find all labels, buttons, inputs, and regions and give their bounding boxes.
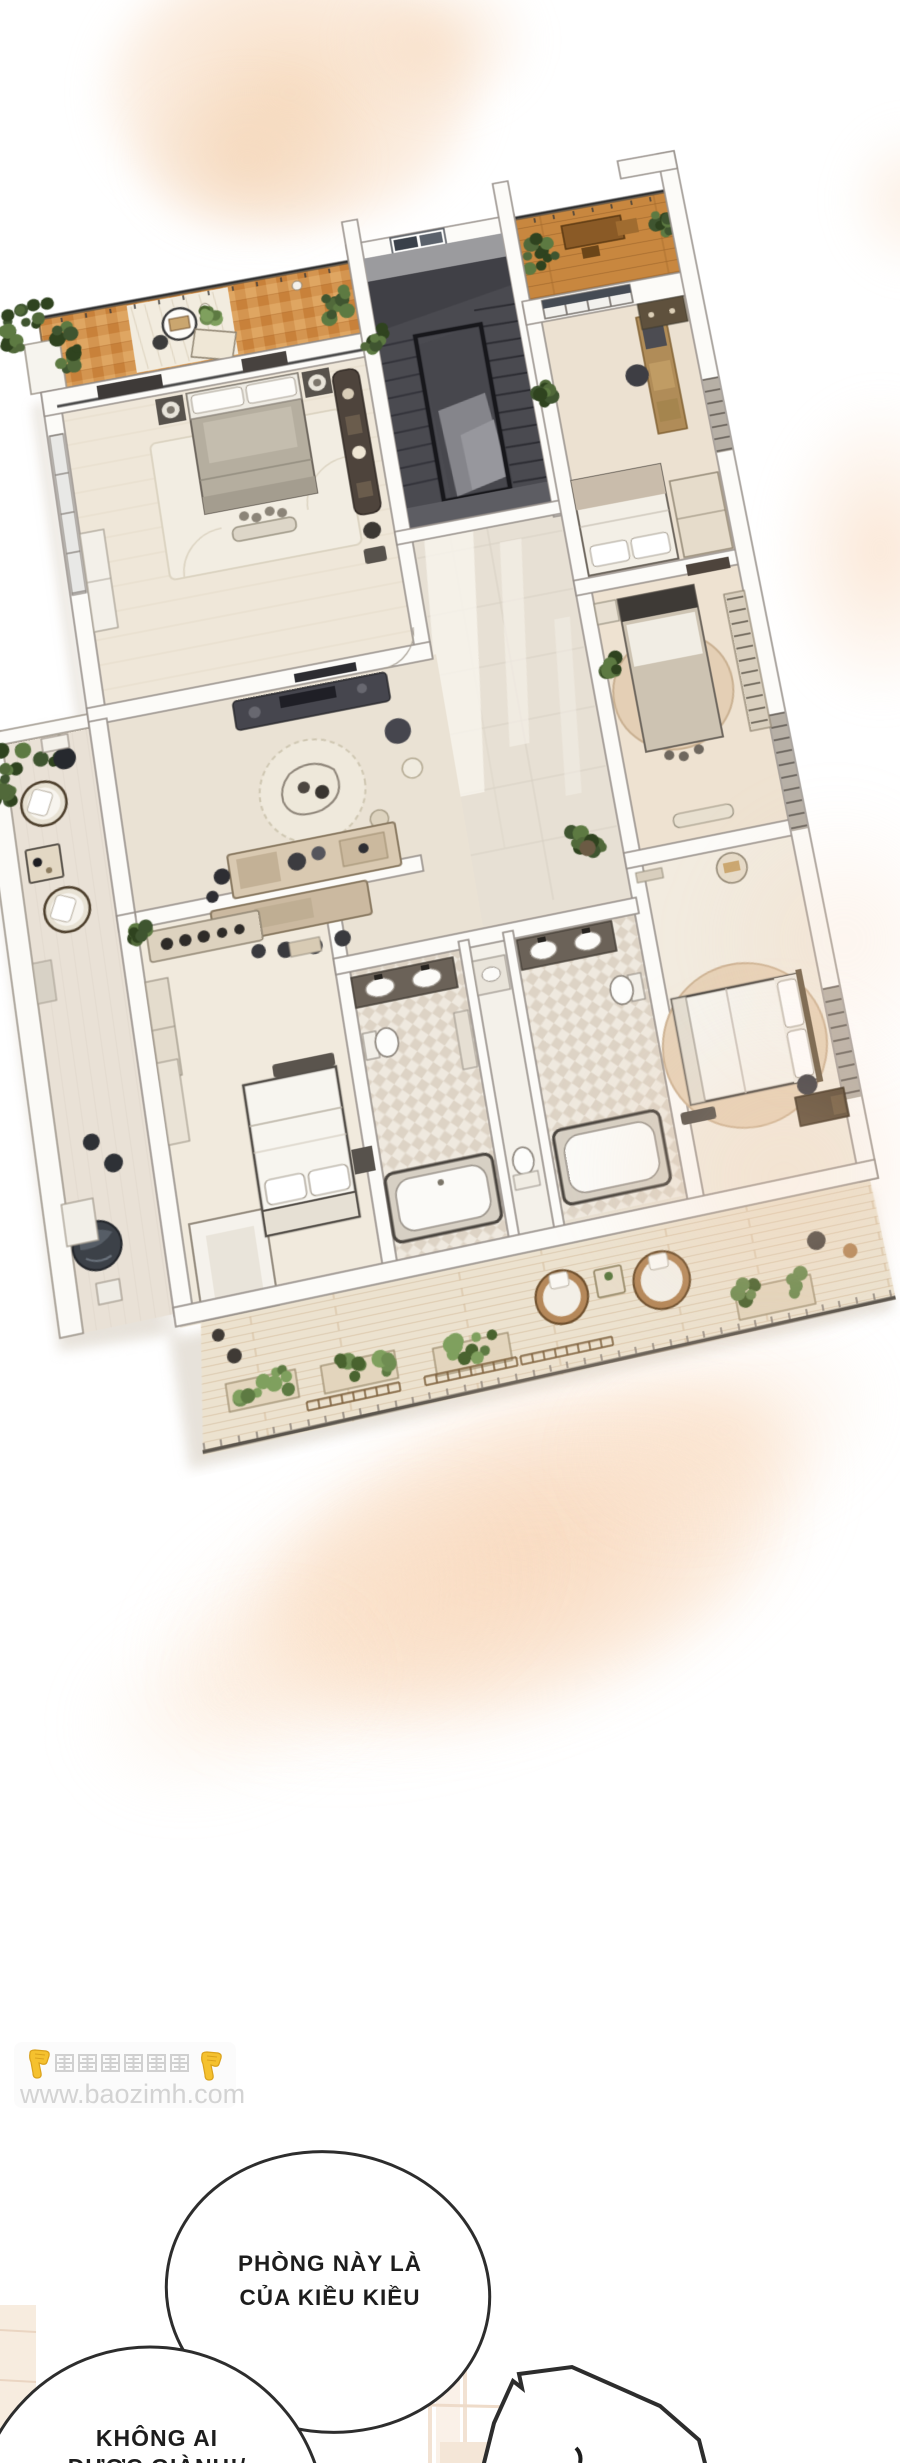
svg-text:KHÔNG AI: KHÔNG AI	[96, 2424, 218, 2451]
svg-text:ĐƯỢC GIÀNH!/: ĐƯỢC GIÀNH!/	[68, 2453, 246, 2463]
svg-text:CỦA KIỀU KIỀU: CỦA KIỀU KIỀU	[240, 2285, 421, 2310]
svg-text:www.baozimh.com: www.baozimh.com	[19, 2079, 245, 2109]
svg-text:PHÒNG NÀY LÀ: PHÒNG NÀY LÀ	[238, 2251, 422, 2276]
